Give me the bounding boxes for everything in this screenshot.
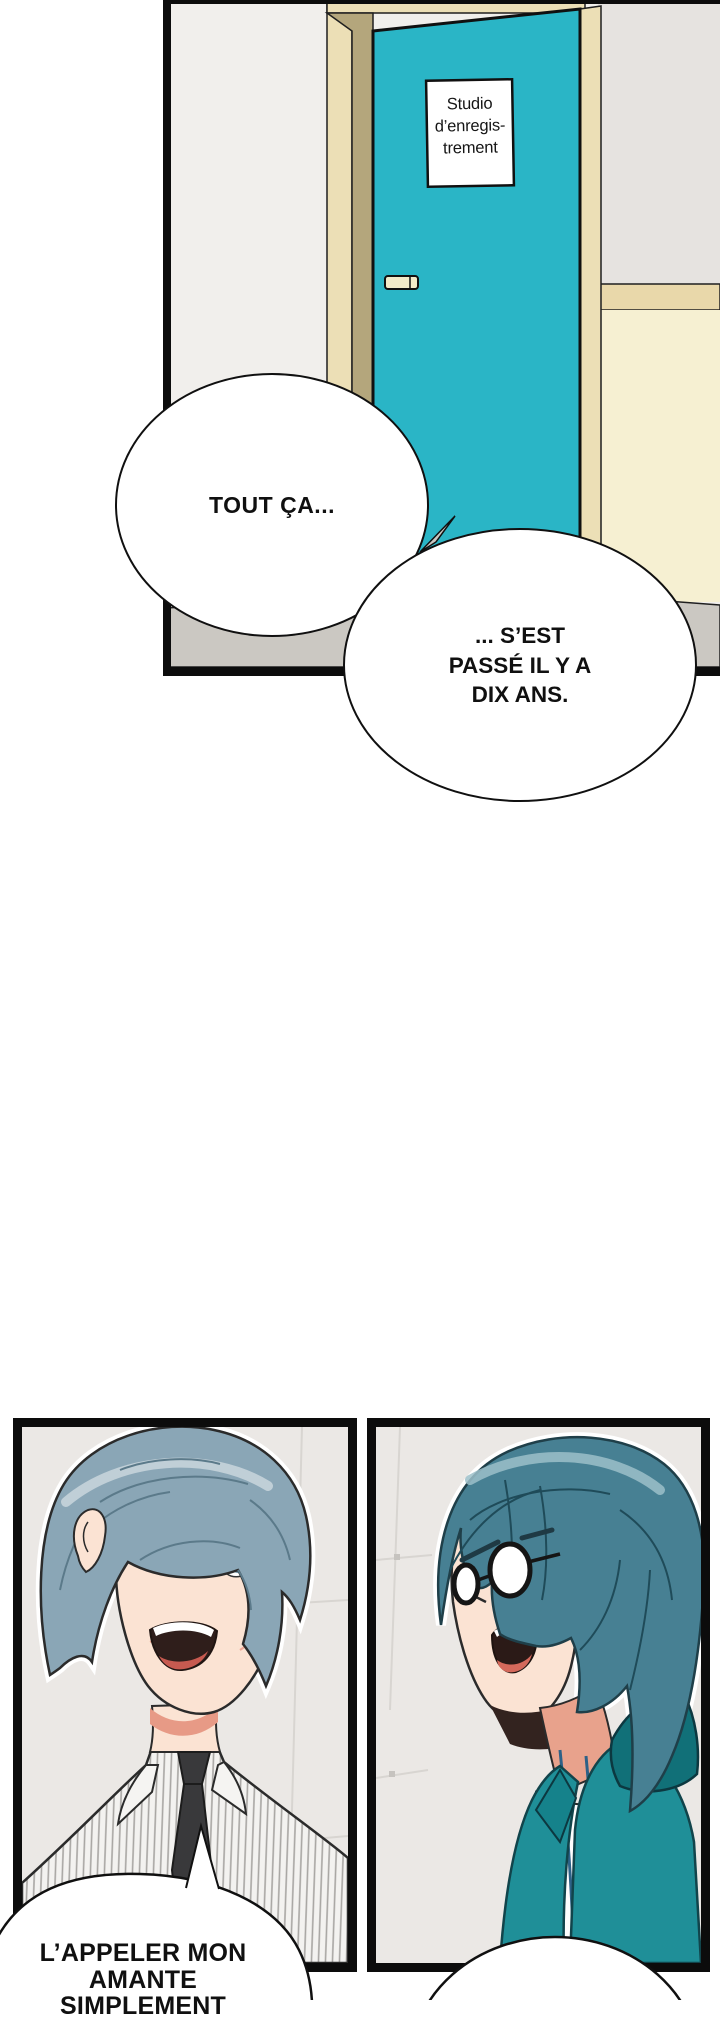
door-sign	[426, 79, 514, 186]
top-panel-art	[0, 0, 720, 810]
bubble-2	[344, 529, 696, 801]
panel-border-top	[163, 0, 720, 4]
bottom-panels-art	[0, 1410, 720, 2000]
comic-page: { "page": {"width": 720, "height": 2000,…	[0, 0, 720, 2000]
wall-right-upper	[598, 0, 720, 290]
chair-rail	[598, 284, 720, 310]
door-handle	[385, 276, 418, 289]
